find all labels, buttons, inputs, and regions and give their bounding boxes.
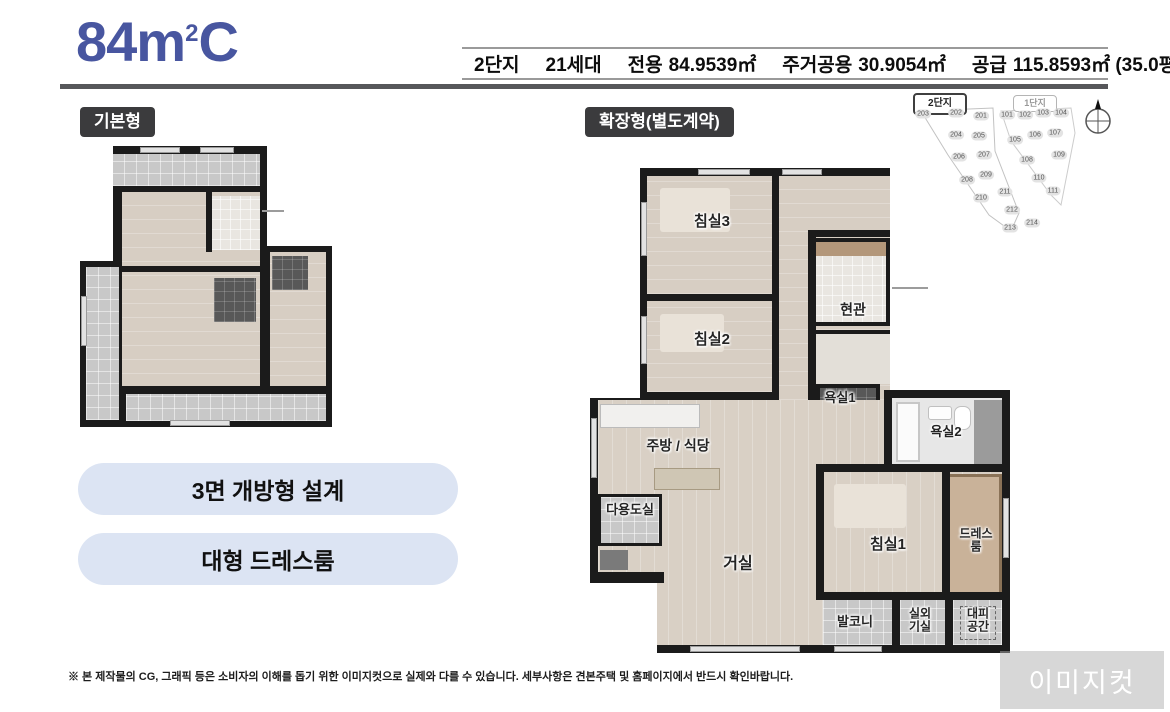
room-label: 현관 [840, 303, 866, 318]
ext-wall [640, 294, 779, 301]
ext-window [641, 202, 647, 256]
ext-window [690, 646, 800, 652]
unit-number: 104 [1053, 109, 1069, 118]
basic-balcony-bottom [126, 394, 326, 421]
complex-name: 2단지 [474, 50, 520, 77]
basic-window [200, 147, 234, 153]
unit-number: 110 [1031, 174, 1046, 183]
ext-bath2-tub [896, 402, 920, 462]
compass-icon [1086, 99, 1110, 133]
unit-info-bar: 2단지 21세대 전용84.9539㎡ 주거공용30.9054㎡ 공급115.8… [462, 47, 1108, 80]
basic-balcony-top [88, 154, 260, 186]
unit-number: 102 [1017, 111, 1033, 120]
floorplan-basic [80, 146, 332, 427]
households-count: 21세대 [546, 50, 602, 77]
basic-window [81, 296, 87, 346]
ext-kitchen-counter [600, 404, 700, 428]
basic-wall [122, 266, 262, 272]
unit-number: 108 [1019, 156, 1035, 165]
basic-bath-dark [214, 278, 256, 322]
page: 84m2C 2단지 21세대 전용84.9539㎡ 주거공용30.9054㎡ 공… [0, 0, 1170, 712]
ext-wall [892, 596, 900, 648]
room-label: 욕실1 [824, 391, 855, 405]
image-cut-watermark: 이미지컷 [1000, 651, 1164, 709]
unit-number: 210 [973, 194, 989, 203]
unit-number: 105 [1007, 136, 1023, 145]
ext-kitchen-island [654, 468, 720, 490]
unit-number: 209 [978, 171, 994, 180]
unit-number: 109 [1051, 151, 1067, 160]
ext-wall [884, 390, 892, 472]
room-label: 거실 [723, 557, 752, 574]
area-common-value: 30.9054㎡ [858, 55, 946, 76]
ext-entry-line [892, 287, 928, 289]
feature-pill-open-design: 3면 개방형 설계 [78, 463, 458, 515]
floorplan-extended: 침실3침실2현관욕실1욕실2주방 / 식당다용도실거실침실1드레스룸발코니실외 … [590, 168, 1010, 653]
room-label: 드레스룸 [959, 527, 993, 552]
feature-pill-dressroom: 대형 드레스룸 [78, 533, 458, 585]
room-label: 침실1 [870, 537, 906, 553]
unit-number: 107 [1047, 129, 1063, 138]
room-label: 다용도실 [606, 503, 654, 517]
header-divider [60, 84, 1108, 89]
area-supply-value: 115.8593㎡ (35.0평) [1013, 55, 1170, 76]
unit-number: 214 [1024, 219, 1040, 228]
ext-utility-dark [600, 550, 628, 570]
site-plan: 2단지 1단지 20320220120420520620720820921021… [893, 93, 1121, 235]
unit-number: 206 [951, 153, 967, 162]
unit-number: 207 [976, 151, 992, 160]
unit-number: 202 [948, 109, 964, 118]
ext-bath2-sink [928, 406, 952, 420]
unit-number: 103 [1035, 109, 1051, 118]
unit-number: 203 [915, 110, 931, 119]
room-label: 주방 / 식당 [646, 439, 709, 454]
ext-window [1003, 498, 1009, 558]
basic-wall [264, 246, 326, 252]
area-supply: 공급115.8593㎡ (35.0평) [972, 50, 1170, 77]
area-exclusive-label: 전용 [628, 55, 663, 76]
basic-wall [264, 246, 270, 390]
ext-wall [598, 392, 774, 400]
title-main: 84m [76, 10, 185, 73]
ext-window [591, 418, 597, 478]
basic-balcony-left [86, 267, 119, 420]
basic-wall [122, 386, 326, 394]
basic-window [170, 420, 230, 426]
ext-wall [818, 592, 1010, 600]
area-common-label: 주거공용 [782, 55, 852, 76]
room-label: 발코니 [837, 615, 873, 629]
ext-bath2-closet [974, 400, 1002, 464]
basic-entry-line [262, 210, 284, 212]
basic-window [140, 147, 180, 153]
ext-wall [812, 230, 892, 237]
unit-number: 204 [948, 131, 964, 140]
room-label: 욕실2 [930, 425, 961, 439]
unit-number: 106 [1027, 131, 1043, 140]
unit-number: 205 [971, 132, 987, 141]
ext-window [782, 169, 822, 175]
page-title: 84m2C [76, 14, 238, 70]
disclaimer-text: ※ 본 제작물의 CG, 그래픽 등은 소비자의 이해를 돕기 위한 이미지컷으… [68, 668, 793, 684]
room-label: 침실3 [694, 214, 730, 230]
room-label: 실외 기실 [909, 607, 931, 632]
title-superscript: 2 [185, 20, 198, 47]
ext-wall [590, 572, 664, 583]
ext-wall [942, 472, 950, 600]
basic-bath-right [272, 256, 308, 290]
ext-window [834, 646, 882, 652]
extended-plan-tag: 확장형(별도계약) [585, 107, 734, 137]
ext-wall [945, 596, 953, 648]
ext-wall [772, 176, 779, 392]
ext-bed1 [834, 484, 906, 528]
ext-wall [808, 230, 816, 400]
ext-wall [816, 464, 1010, 472]
ext-wall [816, 464, 824, 600]
room-label: 침실2 [694, 332, 730, 348]
unit-number: 101 [999, 111, 1015, 120]
ext-closet-floor [816, 330, 890, 384]
area-common: 주거공용30.9054㎡ [782, 50, 946, 77]
ext-window [641, 316, 647, 364]
unit-number: 211 [997, 188, 1012, 197]
unit-number: 208 [959, 176, 975, 185]
area-exclusive: 전용84.9539㎡ [628, 50, 757, 77]
unit-number: 212 [1004, 206, 1020, 215]
room-label: 대피 공간 [967, 607, 989, 632]
title-tail: C [198, 10, 237, 73]
basic-wall [206, 192, 212, 252]
basic-bath-top [210, 196, 260, 250]
area-exclusive-value: 84.9539㎡ [669, 55, 757, 76]
area-supply-label: 공급 [972, 55, 1007, 76]
unit-number: 111 [1046, 187, 1061, 196]
unit-number: 201 [973, 112, 989, 121]
basic-plan-tag: 기본형 [80, 107, 155, 137]
unit-number: 213 [1002, 224, 1018, 233]
ext-entrance-closet [816, 242, 886, 256]
ext-window [698, 169, 750, 175]
